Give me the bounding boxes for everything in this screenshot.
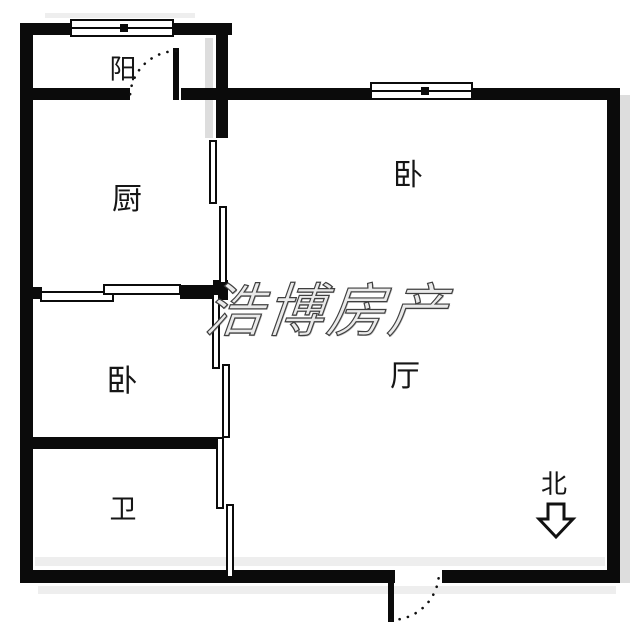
balcony-door-swing-arc <box>130 51 176 97</box>
shadow-top-window <box>45 13 195 18</box>
wall-bottom-left <box>20 570 395 583</box>
watermark: 浩博房产 <box>202 283 452 341</box>
window-latch <box>120 24 128 32</box>
north-arrow-icon <box>539 504 573 537</box>
wall-bed-bath <box>20 437 222 449</box>
window-latch <box>421 87 429 95</box>
wall-kitchen-bottom-left <box>20 287 42 299</box>
entry-door-swing-arc <box>391 572 439 620</box>
kitchen-pass-window <box>103 284 181 295</box>
shadow-bottom-inner <box>35 557 605 566</box>
room-label-bath: 卫 <box>110 497 137 524</box>
sliding-panel <box>219 206 227 284</box>
floor-plan: 阳 厨 卧 卧 厅 卫 北 浩博房产 <box>0 0 642 640</box>
window <box>370 82 473 100</box>
entry-door-leaf <box>388 570 394 622</box>
sliding-panel <box>216 437 224 509</box>
sliding-panel <box>226 504 234 578</box>
wall-upper-mid-left <box>20 88 130 100</box>
room-label-bedroom-mid: 卧 <box>107 366 138 397</box>
north-label: 北 <box>541 472 567 498</box>
window <box>70 19 174 37</box>
room-label-kitchen: 厨 <box>112 185 142 215</box>
balcony-door-leaf <box>173 48 179 100</box>
room-label-bedroom-top: 卧 <box>393 161 423 191</box>
wall-bottom-right <box>442 570 620 583</box>
sliding-panel <box>209 140 217 204</box>
wall-balcony-right <box>216 30 228 138</box>
sliding-panel <box>222 364 230 438</box>
shadow-right-outer <box>620 95 630 583</box>
wall-left <box>20 23 33 583</box>
room-label-living: 厅 <box>390 362 420 392</box>
room-label-balcony: 阳 <box>110 57 137 84</box>
wall-right <box>607 88 620 583</box>
shadow-bottom-outer <box>38 586 616 594</box>
